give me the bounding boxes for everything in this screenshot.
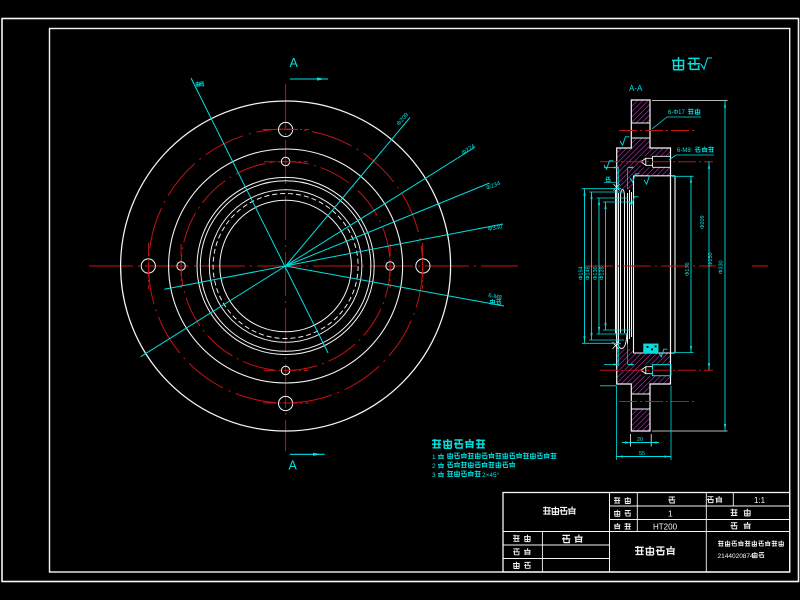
svg-text:6-Φ17: 6-Φ17 (668, 110, 685, 116)
svg-text:55: 55 (639, 451, 645, 457)
svg-text:2×45°: 2×45° (482, 471, 500, 479)
svg-text:6-M8: 6-M8 (677, 148, 691, 154)
svg-text:Φ176: Φ176 (685, 262, 691, 276)
svg-text:Φ154: Φ154 (579, 266, 585, 280)
svg-text:Φ209: Φ209 (700, 215, 706, 229)
svg-text:1: 1 (432, 454, 436, 461)
svg-text:Φ250: Φ250 (708, 252, 714, 266)
svg-text:2: 2 (432, 463, 436, 470)
svg-text:Φ330: Φ330 (719, 260, 725, 274)
svg-text:Φ148: Φ148 (586, 266, 592, 280)
svg-text:1: 1 (668, 509, 673, 519)
svg-text:A: A (290, 56, 299, 70)
svg-text:A-A: A-A (629, 84, 643, 93)
svg-text:20: 20 (637, 437, 643, 443)
svg-text:2144020874: 2144020874 (718, 553, 755, 560)
svg-text:Φ136: Φ136 (593, 266, 599, 280)
svg-text:3: 3 (432, 472, 436, 479)
svg-text:A: A (289, 459, 298, 473)
svg-text:Φ128: Φ128 (600, 266, 606, 280)
svg-text:1:1: 1:1 (754, 496, 766, 505)
svg-text:HT200: HT200 (653, 523, 678, 532)
